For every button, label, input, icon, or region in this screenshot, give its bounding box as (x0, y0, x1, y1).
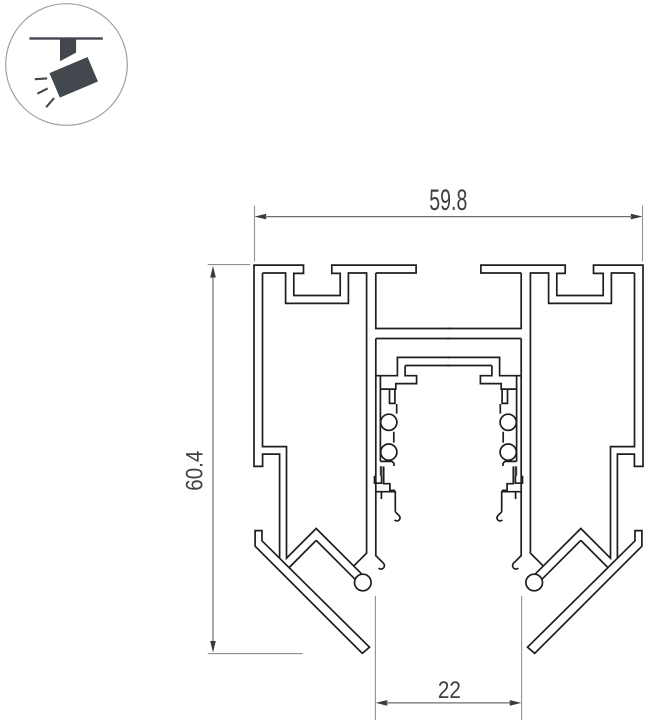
svg-text:60.4: 60.4 (182, 451, 209, 491)
svg-text:59.8: 59.8 (429, 184, 467, 217)
svg-text:22: 22 (438, 677, 461, 704)
